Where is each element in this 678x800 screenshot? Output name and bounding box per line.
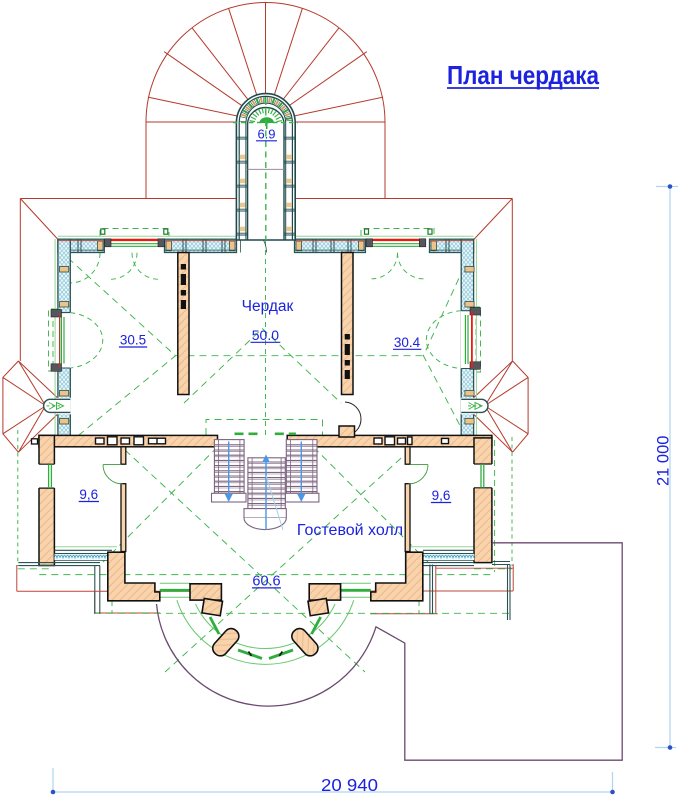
svg-text:30.5: 30.5 <box>120 333 146 348</box>
svg-text:План чердака: План чердака <box>447 60 599 90</box>
svg-text:20 940: 20 940 <box>321 775 378 795</box>
svg-text:60.6: 60.6 <box>252 574 280 590</box>
svg-text:9,6: 9,6 <box>432 488 451 503</box>
svg-text:9,6: 9,6 <box>79 487 98 502</box>
svg-text:50.0: 50.0 <box>252 327 279 343</box>
svg-text:Чердак: Чердак <box>242 298 294 315</box>
svg-text:21 000: 21 000 <box>655 436 673 486</box>
svg-text:Гостевой холл: Гостевой холл <box>297 522 403 539</box>
svg-text:30.4: 30.4 <box>394 335 421 350</box>
svg-text:6.9: 6.9 <box>257 126 275 141</box>
